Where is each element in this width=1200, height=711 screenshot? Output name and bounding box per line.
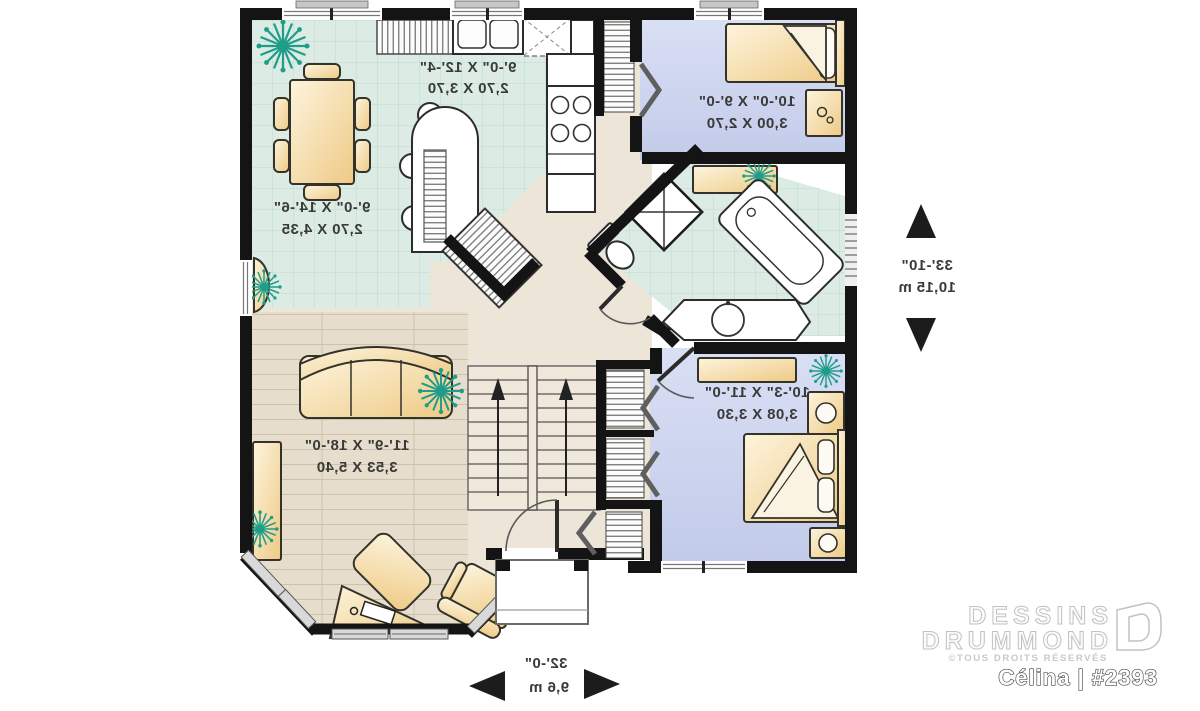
dresser: [698, 358, 796, 382]
window: [845, 214, 857, 286]
closet-shelves: [604, 22, 634, 112]
dining-chair: [304, 64, 340, 79]
pillow: [818, 478, 834, 512]
kitchen-dimensions-imperial: 9'-0" X 12'-4": [420, 59, 517, 76]
window: [282, 1, 382, 20]
dining-chair: [355, 98, 370, 130]
nightstand: [810, 528, 846, 558]
drummond-d-icon: [1117, 603, 1161, 650]
overall-depth-metric: 10,15 m: [898, 279, 956, 296]
pillow: [818, 440, 834, 474]
living-dimensions-metric: 3,53 X 5,40: [316, 459, 397, 476]
overall-width-metric: 9,6 m: [529, 679, 569, 696]
window: [240, 260, 252, 316]
living-dimensions-imperial: 11'-9" X 18'-0": [305, 437, 410, 454]
nightstand: [806, 90, 842, 136]
stove: [547, 86, 595, 174]
lamp-icon: [816, 403, 836, 423]
overall-width-imperial: 32'-0": [524, 655, 567, 672]
counter-segment: [547, 174, 595, 212]
dimension-arrow-up-icon: [906, 204, 936, 238]
logo-name-line1: DESSINS: [968, 602, 1113, 630]
bedroom2-dimensions-metric: 3,08 X 3,30: [716, 406, 797, 423]
dining-chair: [274, 98, 289, 130]
sofa: [300, 347, 452, 418]
vanity-sink: [663, 300, 810, 340]
closet-shelves: [606, 370, 644, 428]
bed: [744, 430, 846, 526]
counter-segment: [571, 20, 594, 54]
entry-porch: [496, 560, 588, 624]
nightstand: [808, 392, 844, 434]
bedroom1-dimensions-imperial: 10'-0" X 9'-0": [699, 93, 796, 110]
dining-chair: [274, 140, 289, 172]
dimension-arrow-left-icon: [469, 671, 505, 701]
bed: [726, 20, 845, 86]
window: [661, 561, 747, 573]
plan-name-number: Célina | #2393: [998, 665, 1158, 690]
kitchen-dimensions-metric: 2,70 X 3,70: [427, 80, 508, 97]
staircase: [468, 366, 600, 510]
closet-shelves: [606, 439, 644, 498]
headboard: [838, 430, 846, 526]
dimension-arrow-down-icon: [906, 318, 936, 352]
dining-table: [290, 80, 354, 184]
logo-name-line2: DRUMMOND: [922, 627, 1113, 655]
closet-shelves: [606, 512, 642, 558]
bedroom1-dimensions-metric: 3,00 X 2,70: [706, 115, 787, 132]
lamp-icon: [819, 534, 837, 552]
dining-chair: [304, 185, 340, 200]
logo-rights-text: ©TOUS DROITS RÉSERVÉS: [948, 653, 1108, 664]
counter-segment: [547, 54, 595, 88]
bookcase: [253, 442, 281, 560]
dining-dimensions-metric: 2,70 X 4,35: [281, 221, 362, 238]
dining-dimensions-imperial: 9'-0" X 14'-6": [274, 199, 371, 216]
floor-plan-canvas: 9'-0" X 12'-4" 2,70 X 3,70 9'-0" X 14'-6…: [0, 0, 1200, 711]
dining-chair: [355, 140, 370, 172]
headboard: [836, 20, 845, 86]
dimension-arrow-right-icon: [584, 669, 620, 699]
bedroom2-dimensions-imperial: 10'-3" X 11'-0": [705, 384, 810, 401]
window: [450, 1, 524, 20]
window: [694, 1, 764, 20]
overall-depth-imperial: 33'-10": [901, 257, 953, 274]
logo: DESSINS DRUMMOND ©TOUS DROITS RÉSERVÉS C…: [922, 602, 1161, 690]
